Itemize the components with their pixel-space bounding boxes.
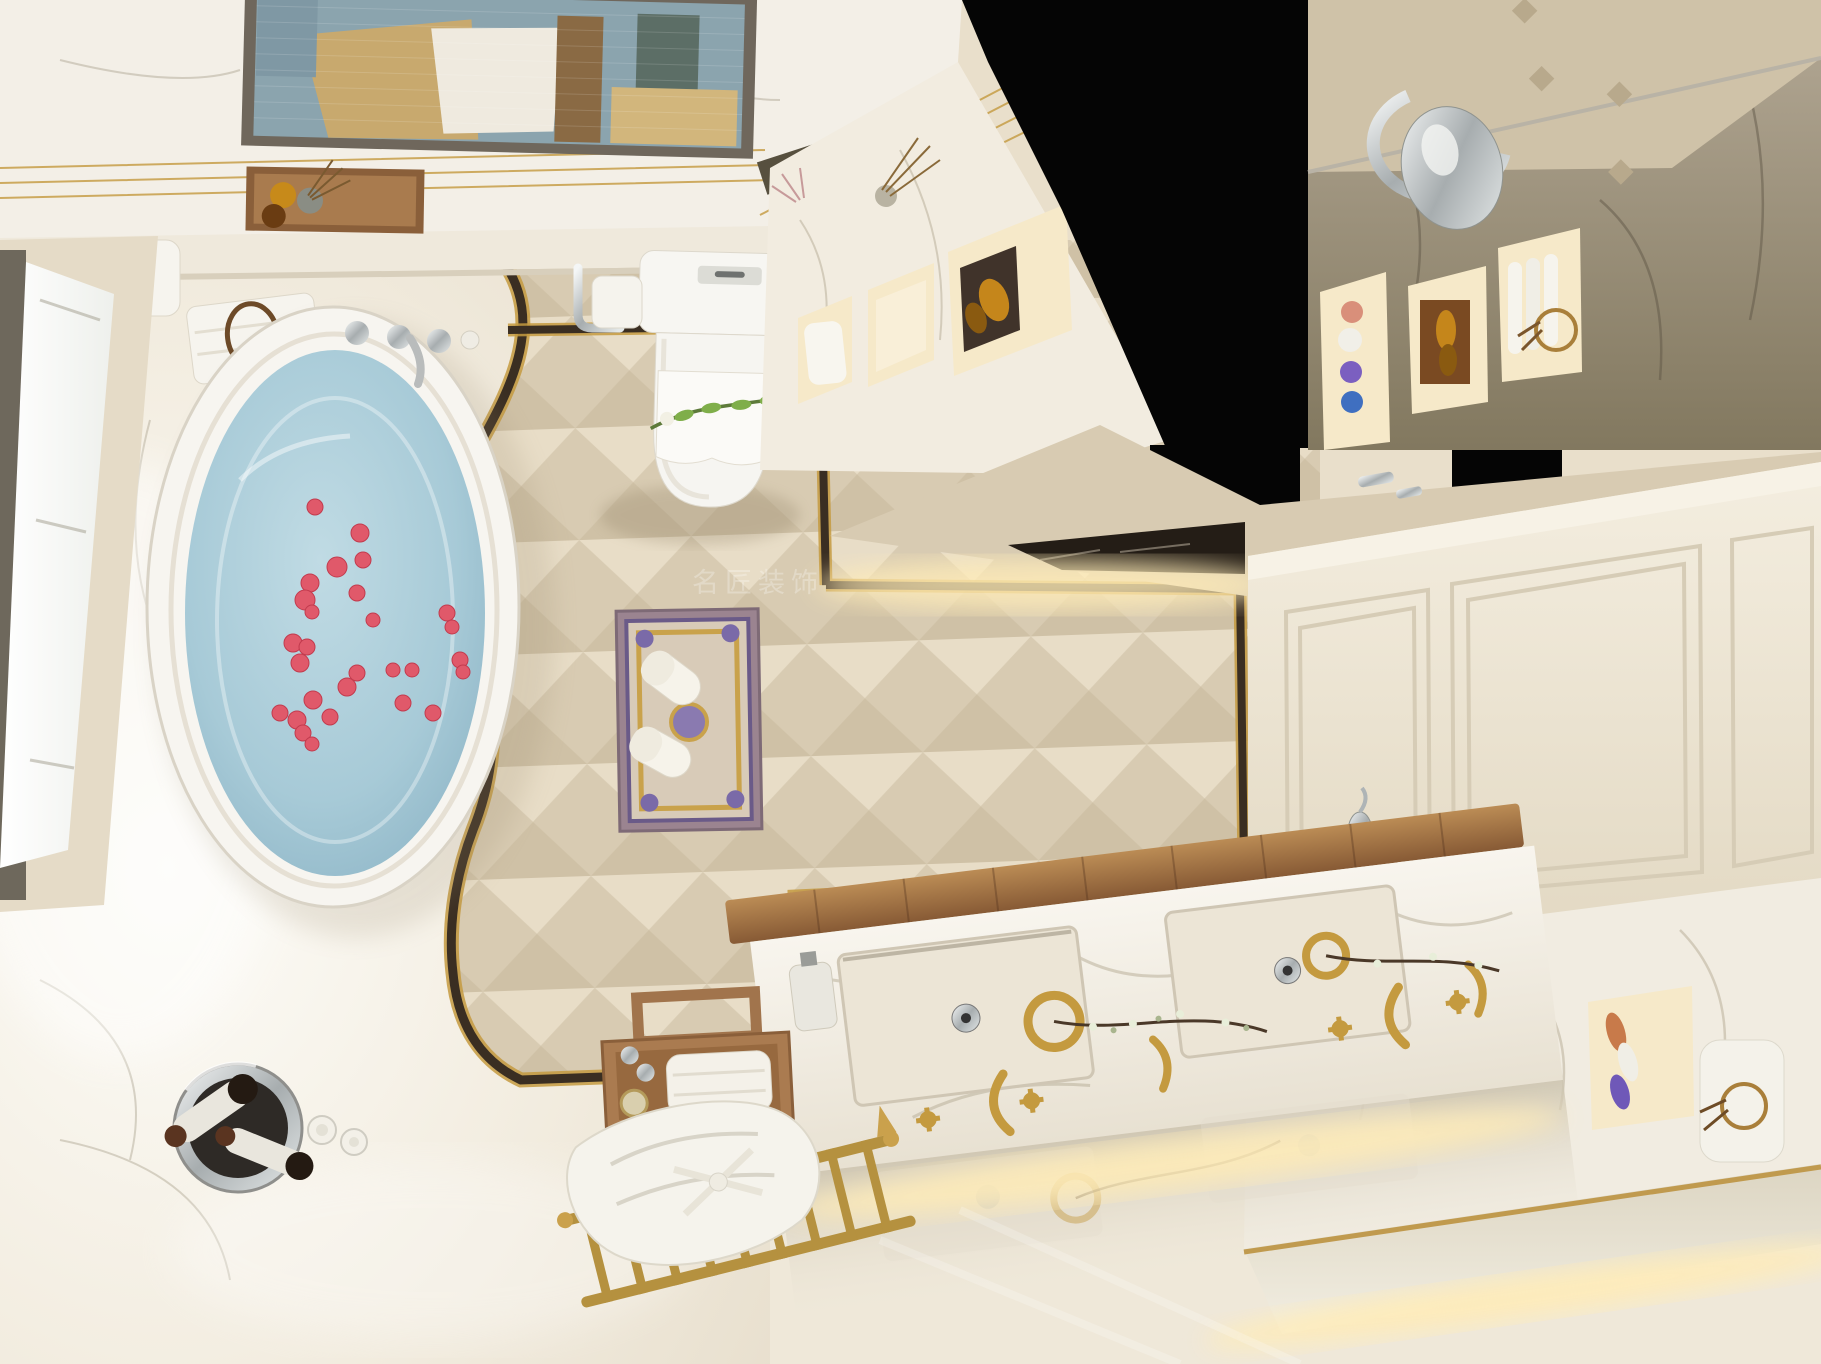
rose-petal <box>456 665 470 679</box>
towel-stack <box>1700 1040 1784 1162</box>
soap-dispenser <box>788 961 838 1032</box>
paper-roll <box>592 276 642 328</box>
perfume-blue <box>1341 391 1363 413</box>
mirror-niche-right <box>1588 986 1694 1130</box>
perfume-white <box>1338 328 1362 352</box>
rose-petal <box>386 663 400 677</box>
candle <box>621 1090 648 1117</box>
rose-petal <box>307 499 323 515</box>
rose-petal <box>272 705 288 721</box>
watermark: 名匠装饰 <box>692 568 824 599</box>
rose-petal <box>405 663 419 677</box>
rose-petal <box>366 613 380 627</box>
soap-dish <box>461 331 479 349</box>
rose-petal <box>439 605 455 621</box>
niche-perfumes <box>1320 272 1390 450</box>
rose-petal <box>338 678 356 696</box>
rose-petal <box>301 574 319 592</box>
rose-petal <box>327 557 347 577</box>
perfume-purple <box>1340 361 1362 383</box>
rose-petal <box>445 620 459 634</box>
rug-medallion <box>671 704 708 741</box>
flush-button <box>715 271 745 278</box>
freestanding-bathtub <box>147 307 519 907</box>
rose-petal <box>304 691 322 709</box>
rose-petal <box>291 654 309 672</box>
rose-petal <box>355 552 371 568</box>
rose-petal <box>349 585 365 601</box>
bathroom-render: 名匠装饰 <box>0 0 1821 1364</box>
led-cove-lighting <box>815 559 1275 611</box>
rose-petal <box>299 639 315 655</box>
perfume-pink <box>1341 301 1363 323</box>
rose-petal <box>322 709 338 725</box>
rose-petal <box>395 695 411 711</box>
rose-petal <box>305 605 319 619</box>
ornamental-rug <box>616 609 762 831</box>
ceiling-artwork <box>241 0 757 159</box>
rose-petal <box>305 737 319 751</box>
reed-diffuser <box>875 185 897 207</box>
rose-petal <box>351 524 369 542</box>
rose-petal <box>425 705 441 721</box>
niche-towel-roll <box>803 320 847 386</box>
vanity-wall-top-right <box>1308 0 1821 450</box>
amenity-tray <box>245 159 424 234</box>
